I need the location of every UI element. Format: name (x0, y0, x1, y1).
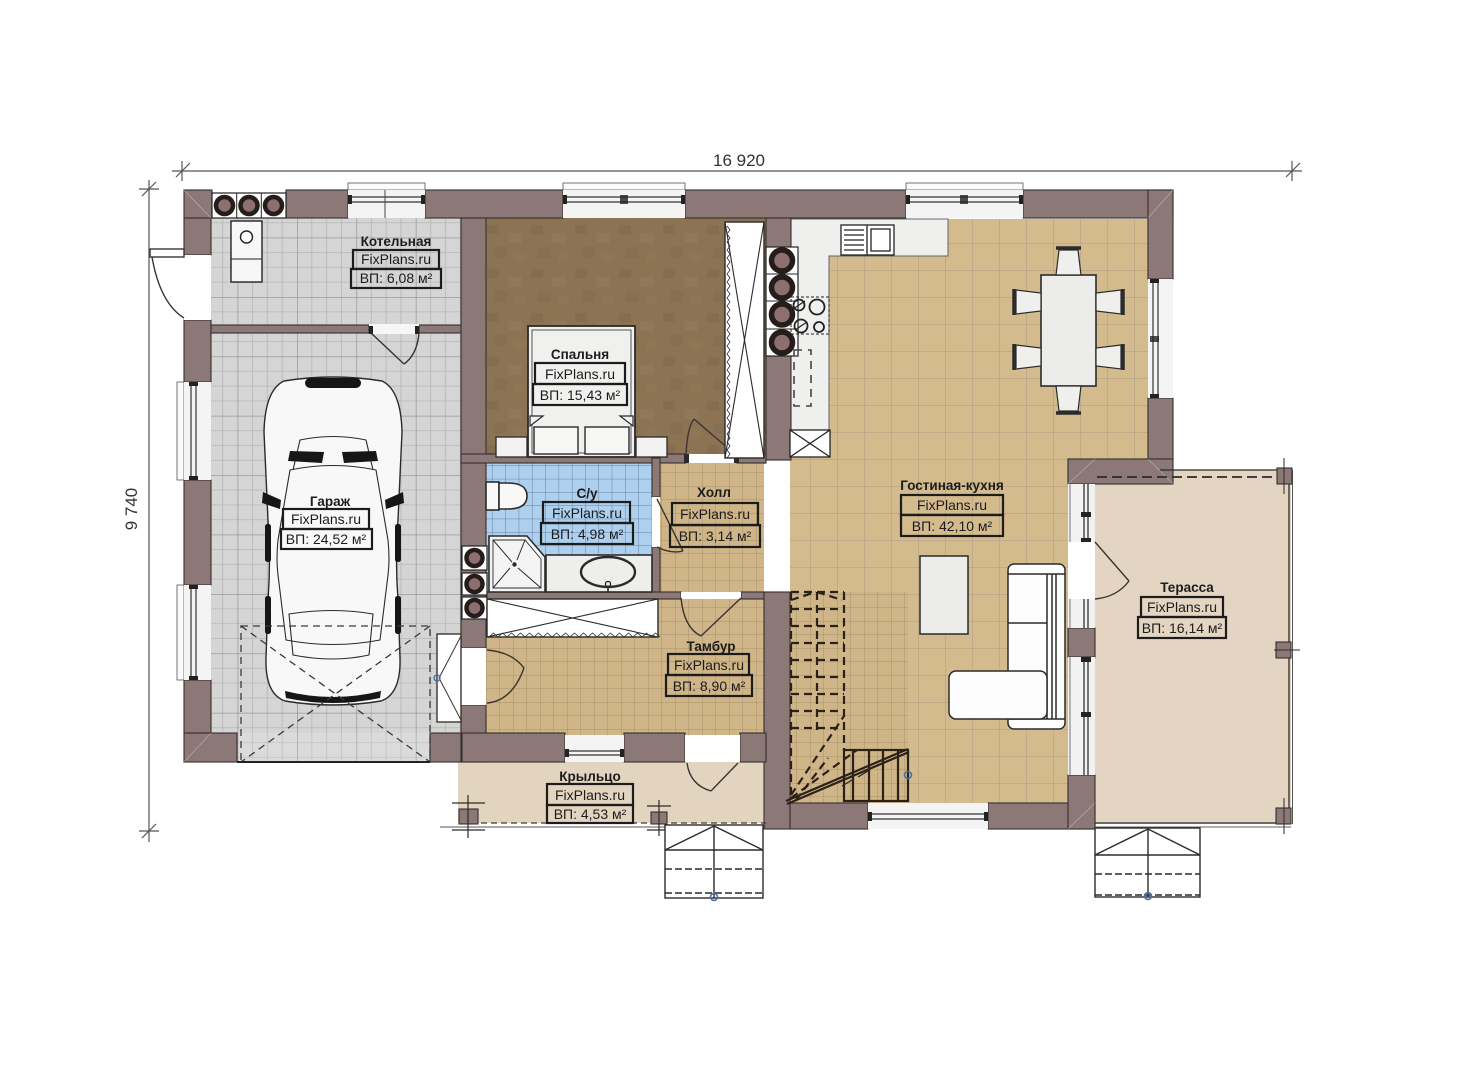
svg-text:ВП: 4,98 м²: ВП: 4,98 м² (551, 526, 624, 542)
svg-text:ВП: 16,14 м²: ВП: 16,14 м² (1142, 620, 1223, 636)
svg-text:FixPlans.ru: FixPlans.ru (680, 506, 750, 522)
svg-text:FixPlans.ru: FixPlans.ru (917, 497, 987, 513)
svg-text:FixPlans.ru: FixPlans.ru (1147, 599, 1217, 615)
svg-text:С/у: С/у (576, 486, 598, 501)
svg-text:Терасса: Терасса (1160, 580, 1214, 595)
svg-text:FixPlans.ru: FixPlans.ru (545, 366, 615, 382)
svg-text:ВП: 8,90 м²: ВП: 8,90 м² (673, 678, 746, 694)
svg-text:FixPlans.ru: FixPlans.ru (291, 511, 361, 527)
svg-text:9 740: 9 740 (122, 488, 141, 531)
svg-text:Гараж: Гараж (310, 494, 351, 509)
svg-text:ВП: 4,53 м²: ВП: 4,53 м² (554, 806, 627, 822)
svg-text:Гостиная-кухня: Гостиная-кухня (900, 478, 1003, 493)
svg-text:FixPlans.ru: FixPlans.ru (361, 251, 431, 267)
svg-text:ВП: 3,14 м²: ВП: 3,14 м² (679, 528, 752, 544)
svg-text:Котельная: Котельная (361, 234, 432, 249)
svg-text:ВП: 24,52 м²: ВП: 24,52 м² (286, 531, 367, 547)
svg-text:Спальня: Спальня (551, 347, 609, 362)
svg-text:ВП: 15,43 м²: ВП: 15,43 м² (540, 387, 621, 403)
svg-text:FixPlans.ru: FixPlans.ru (674, 657, 744, 673)
svg-text:16 920: 16 920 (713, 151, 765, 170)
svg-text:ВП: 6,08 м²: ВП: 6,08 м² (360, 270, 433, 286)
svg-text:ВП: 42,10 м²: ВП: 42,10 м² (912, 518, 993, 534)
svg-text:Тамбур: Тамбур (687, 639, 736, 654)
svg-text:Холл: Холл (697, 485, 731, 500)
svg-text:Крыльцо: Крыльцо (559, 769, 620, 784)
svg-text:FixPlans.ru: FixPlans.ru (555, 787, 625, 803)
svg-text:FixPlans.ru: FixPlans.ru (552, 505, 622, 521)
